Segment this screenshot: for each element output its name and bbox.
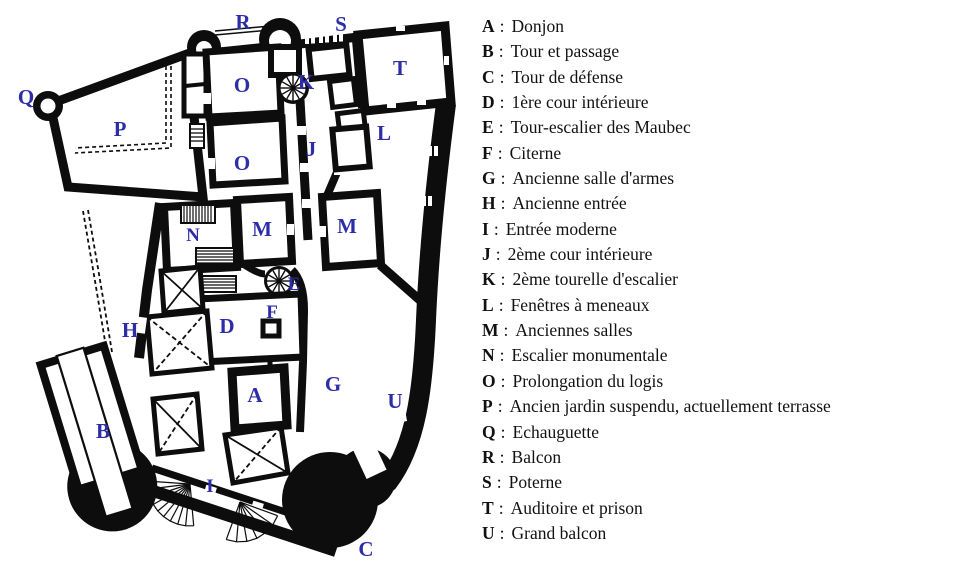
legend-item: Q:Echauguette	[482, 420, 958, 445]
legend-separator: :	[504, 320, 509, 340]
plan-label-F: F	[266, 302, 278, 323]
plan-label-M1: M	[252, 217, 272, 241]
plan-label-S: S	[335, 12, 347, 36]
legend-separator: :	[501, 168, 506, 188]
legend-label: Poterne	[509, 472, 562, 492]
legend-key: L	[482, 295, 494, 315]
legend-separator: :	[494, 219, 499, 239]
plan-label-A: A	[247, 383, 263, 407]
legend-item: H:Ancienne entrée	[482, 191, 958, 216]
legend-item: I:Entrée moderne	[482, 217, 958, 242]
plan-label-L: L	[377, 121, 391, 145]
legend-key: D	[482, 92, 495, 112]
legend-item: T:Auditoire et prison	[482, 496, 958, 521]
plan-label-R: R	[235, 10, 251, 34]
legend-item: B:Tour et passage	[482, 39, 958, 64]
legend-item: L:Fenêtres à meneaux	[482, 293, 958, 318]
legend-key: E	[482, 117, 494, 137]
legend-key: S	[482, 472, 492, 492]
legend-item: A:Donjon	[482, 14, 958, 39]
legend-item: J:2ème cour intérieure	[482, 242, 958, 267]
plan-label-J: J	[306, 137, 317, 161]
legend-key: G	[482, 168, 496, 188]
plan-label-P: P	[114, 117, 127, 141]
legend-label: Ancienne salle d'armes	[513, 168, 675, 188]
legend: A:Donjon B:Tour et passage C:Tour de déf…	[482, 14, 958, 546]
plan-label-I: I	[206, 476, 213, 497]
legend-key: U	[482, 523, 495, 543]
legend-key: C	[482, 67, 495, 87]
legend-separator: :	[499, 117, 504, 137]
legend-separator: :	[501, 269, 506, 289]
legend-separator: :	[500, 523, 505, 543]
legend-label: Ancienne entrée	[513, 193, 627, 213]
plan-label-U: U	[387, 389, 402, 413]
legend-label: Citerne	[510, 143, 562, 163]
legend-label: Donjon	[512, 16, 565, 36]
legend-separator: :	[499, 498, 504, 518]
legend-key: A	[482, 16, 495, 36]
legend-key: P	[482, 396, 493, 416]
legend-label: 1ère cour intérieure	[512, 92, 649, 112]
N-stair	[164, 203, 237, 271]
legend-key: F	[482, 143, 493, 163]
legend-separator: :	[501, 371, 506, 391]
legend-key: Q	[482, 422, 496, 442]
dashed-path	[83, 210, 112, 353]
legend-separator: :	[497, 472, 502, 492]
legend-separator: :	[499, 41, 504, 61]
legend-item: C:Tour de défense	[482, 65, 958, 90]
legend-separator: :	[500, 67, 505, 87]
legend-key: H	[482, 193, 496, 213]
legend-label: Tour et passage	[511, 41, 620, 61]
legend-label: Tour de défense	[512, 67, 624, 87]
floor-plan-svg: Q R S T P O K L J O N M M E H D F B A G …	[0, 0, 480, 571]
plan-label-T: T	[393, 56, 407, 80]
plan-label-H: H	[122, 318, 138, 342]
legend-separator: :	[498, 396, 503, 416]
legend-label: Ancien jardin suspendu, actuellement ter…	[510, 396, 831, 416]
legend-key: K	[482, 269, 496, 289]
plan-label-E: E	[288, 274, 301, 295]
legend-label: Echauguette	[513, 422, 599, 442]
plan-label-C: C	[358, 537, 373, 561]
legend-item: E:Tour-escalier des Maubec	[482, 115, 958, 140]
legend-separator: :	[501, 193, 506, 213]
legend-label: Fenêtres à meneaux	[511, 295, 650, 315]
legend-label: Balcon	[512, 447, 562, 467]
legend-key: J	[482, 244, 491, 264]
legend-label: Entrée moderne	[506, 219, 617, 239]
legend-separator: :	[496, 244, 501, 264]
legend-key: O	[482, 371, 496, 391]
legend-key: N	[482, 345, 495, 365]
legend-item: S:Poterne	[482, 470, 958, 495]
legend-item: D:1ère cour intérieure	[482, 90, 958, 115]
legend-separator: :	[500, 447, 505, 467]
plan-label-O2: O	[234, 151, 250, 175]
legend-separator: :	[501, 422, 506, 442]
legend-separator: :	[499, 295, 504, 315]
plan-label-N: N	[186, 225, 200, 246]
legend-label: Tour-escalier des Maubec	[511, 117, 691, 137]
plan-label-B: B	[96, 419, 110, 443]
legend-item: K:2ème tourelle d'escalier	[482, 267, 958, 292]
legend-item: O:Prolongation du logis	[482, 369, 958, 394]
plan-label-M2: M	[337, 214, 357, 238]
castle-floor-plan: Q R S T P O K L J O N M M E H D F B A G …	[0, 0, 480, 571]
legend-label: Grand balcon	[512, 523, 607, 543]
legend-separator: :	[500, 16, 505, 36]
plan-label-Q: Q	[18, 85, 34, 109]
plan-label-D: D	[219, 314, 234, 338]
legend-key: I	[482, 219, 489, 239]
legend-separator: :	[500, 345, 505, 365]
legend-item: G:Ancienne salle d'armes	[482, 166, 958, 191]
citerne-F-icon	[263, 321, 279, 336]
legend-label: Prolongation du logis	[513, 371, 664, 391]
legend-item: P:Ancien jardin suspendu, actuellement t…	[482, 394, 958, 419]
legend-separator: :	[500, 92, 505, 112]
legend-key: R	[482, 447, 495, 467]
legend-label: Escalier monumentale	[512, 345, 668, 365]
plan-label-O1: O	[234, 73, 250, 97]
legend-key: B	[482, 41, 494, 61]
legend-label: 2ème cour intérieure	[508, 244, 653, 264]
legend-key: T	[482, 498, 494, 518]
legend-label: 2ème tourelle d'escalier	[513, 269, 678, 289]
plan-label-K: K	[298, 70, 315, 94]
legend-item: M:Anciennes salles	[482, 318, 958, 343]
legend-item: U:Grand balcon	[482, 521, 958, 546]
legend-item: N:Escalier monumentale	[482, 343, 958, 368]
legend-item: R:Balcon	[482, 445, 958, 470]
legend-label: Anciennes salles	[515, 320, 632, 340]
legend-key: M	[482, 320, 499, 340]
legend-label: Auditoire et prison	[511, 498, 643, 518]
legend-separator: :	[498, 143, 503, 163]
legend-item: F:Citerne	[482, 141, 958, 166]
plan-label-G: G	[325, 372, 341, 396]
